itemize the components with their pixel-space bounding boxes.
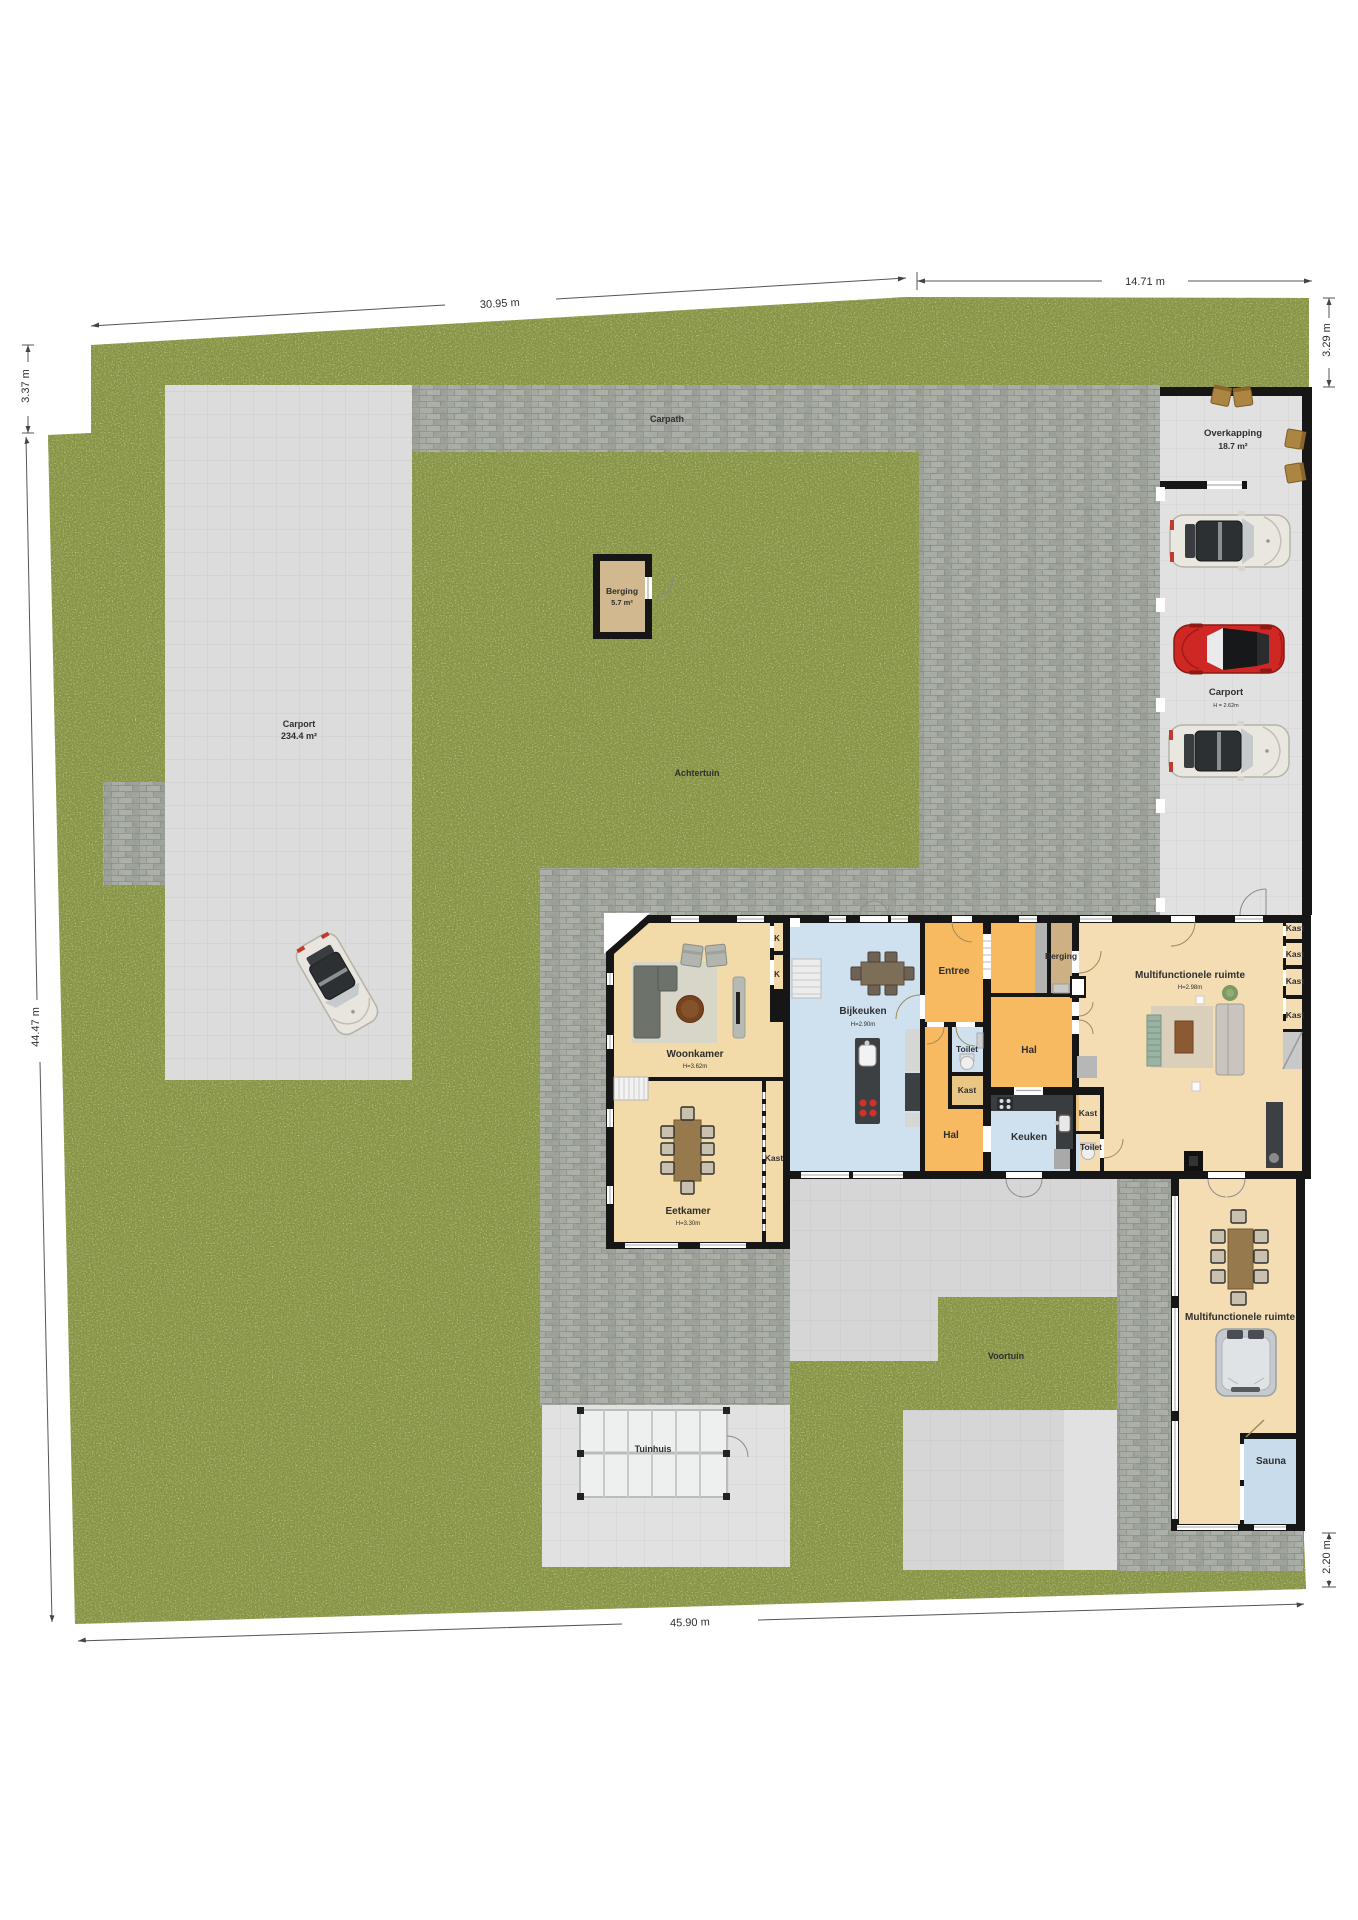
svg-text:H=3.30m: H=3.30m	[676, 1221, 701, 1227]
svg-text:Kast: Kast	[1286, 949, 1305, 959]
svg-text:Kast: Kast	[1079, 1108, 1098, 1118]
svg-text:Carpath: Carpath	[650, 414, 684, 424]
svg-text:Kast: Kast	[1286, 1010, 1305, 1020]
svg-text:H=3.62m: H=3.62m	[683, 1064, 708, 1070]
svg-text:Kast: Kast	[1286, 976, 1305, 986]
svg-text:Toilet: Toilet	[956, 1044, 978, 1054]
svg-text:K: K	[774, 970, 780, 979]
svg-text:3.37 m: 3.37 m	[20, 369, 32, 403]
svg-text:Carport: Carport	[283, 719, 316, 729]
svg-text:Hal: Hal	[1021, 1045, 1037, 1056]
svg-text:Woonkamer: Woonkamer	[666, 1049, 723, 1060]
svg-text:Keuken: Keuken	[1011, 1132, 1047, 1143]
svg-text:Toilet: Toilet	[1080, 1142, 1102, 1152]
svg-text:3.29 m: 3.29 m	[1321, 323, 1333, 357]
svg-text:H = 2.62m: H = 2.62m	[1213, 703, 1239, 709]
svg-text:Berging: Berging	[1045, 951, 1077, 961]
svg-text:Multifunctionele ruimte: Multifunctionele ruimte	[1135, 970, 1245, 981]
svg-text:Voortuin: Voortuin	[988, 1351, 1024, 1361]
svg-text:Carport: Carport	[1209, 687, 1244, 698]
svg-text:Bijkeuken: Bijkeuken	[839, 1006, 886, 1017]
svg-text:Kast: Kast	[765, 1153, 784, 1163]
svg-text:14.71 m: 14.71 m	[1125, 276, 1165, 288]
svg-text:44.47 m: 44.47 m	[30, 1007, 42, 1047]
svg-text:H=2.90m: H=2.90m	[851, 1022, 876, 1028]
svg-text:Overkapping: Overkapping	[1204, 428, 1262, 439]
svg-text:2.20 m: 2.20 m	[1321, 1540, 1333, 1574]
svg-text:Berging: Berging	[606, 586, 638, 596]
svg-text:Hal: Hal	[943, 1130, 959, 1141]
svg-text:H=2.98m: H=2.98m	[1178, 985, 1203, 991]
svg-text:5.7 m²: 5.7 m²	[611, 598, 633, 607]
svg-text:45.90 m: 45.90 m	[670, 1616, 710, 1629]
svg-text:K: K	[774, 934, 780, 943]
svg-text:Multifunctionele ruimte: Multifunctionele ruimte	[1185, 1312, 1295, 1323]
svg-text:Eetkamer: Eetkamer	[665, 1206, 710, 1217]
svg-text:Kast: Kast	[958, 1085, 977, 1095]
svg-text:18.7 m²: 18.7 m²	[1218, 441, 1247, 451]
svg-text:234.4 m²: 234.4 m²	[281, 731, 317, 741]
svg-text:Entree: Entree	[938, 966, 970, 977]
svg-text:Kast: Kast	[1286, 923, 1305, 933]
svg-text:Tuinhuis: Tuinhuis	[635, 1444, 672, 1454]
svg-text:Achtertuin: Achtertuin	[675, 768, 720, 778]
svg-text:30.95 m: 30.95 m	[480, 297, 520, 311]
svg-text:Sauna: Sauna	[1256, 1456, 1286, 1467]
